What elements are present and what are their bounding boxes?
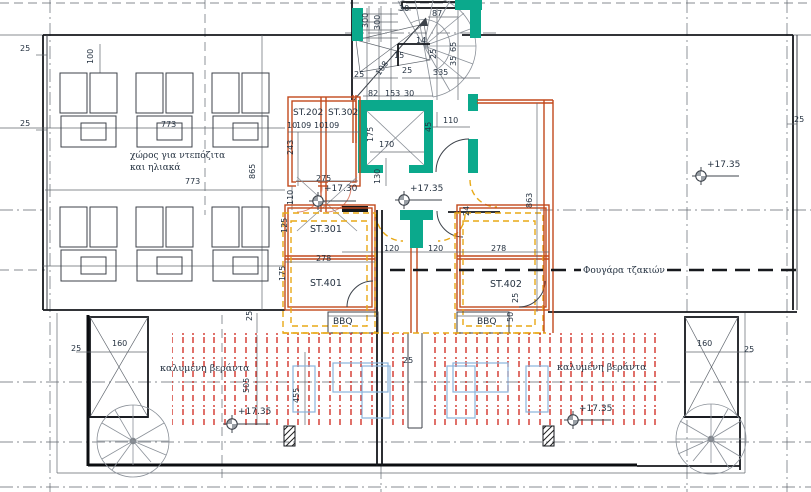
dim: 170 — [379, 140, 394, 149]
dim: 130 — [373, 169, 382, 184]
dim: 300 — [373, 15, 382, 30]
veranda-label-left: καλυμένη βεράντα — [160, 363, 250, 374]
dim: 25 — [403, 356, 413, 365]
dim: 160 — [112, 339, 127, 348]
storage-area-label-line2: και ηλιακά — [130, 163, 181, 173]
dim: 120 — [384, 244, 399, 253]
room-label-st401: ST.401 — [310, 278, 342, 289]
dim: 50 — [506, 312, 515, 322]
dim: 87 — [432, 9, 442, 18]
dim: 25 — [402, 66, 412, 75]
dim: 455 — [292, 388, 301, 403]
dim: 25 — [429, 49, 438, 59]
dim: 120 — [428, 244, 443, 253]
dim: 25 — [511, 293, 520, 303]
dim: 300 — [361, 13, 370, 28]
bbq-label-right: BBQ — [477, 317, 496, 327]
dim: 109 — [296, 121, 311, 130]
room-label-st202: ST.202 — [293, 108, 323, 118]
dim: 25 — [20, 44, 30, 53]
shaft-box-right — [683, 317, 752, 417]
dim: 24 — [462, 206, 471, 216]
dim: 30 — [399, 4, 409, 13]
dim: 30 — [404, 89, 414, 98]
dim: 100 — [86, 49, 95, 64]
dim: 10 — [314, 121, 324, 130]
room-label-st302: ST.302 — [328, 108, 358, 118]
dim: 25 — [71, 344, 81, 353]
dim: 82 — [368, 89, 378, 98]
dim: 773 — [161, 120, 176, 129]
dim: 25 — [20, 119, 30, 128]
dim: 109 — [324, 121, 339, 130]
dim: 25 — [744, 345, 754, 354]
dim: 110 — [286, 190, 295, 205]
level-label-upper-landing: +17.30 — [324, 184, 357, 194]
dim: 45 — [424, 122, 433, 132]
storage-area-label-line1: χώρος για ντεπόζιτα — [130, 151, 225, 161]
dim: 25 — [354, 70, 364, 79]
dim: 275 — [316, 174, 331, 183]
dim: 505 — [242, 378, 251, 393]
floor-plan-canvas: χώρος για ντεπόζιτα και ηλιακά καλυμένη … — [0, 0, 811, 492]
dim: 160 — [697, 339, 712, 348]
dim: 110 — [443, 116, 458, 125]
dim: 175 — [278, 266, 287, 281]
bbq-label-left: BBQ — [333, 317, 352, 327]
dim: 278 — [491, 244, 506, 253]
dim: 335 — [433, 68, 448, 77]
dim: 35 — [449, 56, 458, 66]
room-label-st402: ST.402 — [490, 279, 522, 290]
winder-stair — [352, 0, 480, 100]
building-outline — [0, 2, 811, 312]
room-label-st301: ST.301 — [310, 224, 342, 235]
level-label-roof-right: +17.35 — [707, 160, 740, 170]
dim: 153 — [385, 89, 400, 98]
dim: 865 — [248, 164, 257, 179]
dim: 25 — [794, 115, 804, 124]
column-section-right — [543, 426, 554, 446]
level-label-veranda-left: +17.35 — [238, 407, 271, 417]
level-label-veranda-right: +17.35 — [579, 404, 612, 414]
spiral-stair-right — [676, 404, 746, 474]
dim: 15 — [394, 51, 404, 60]
dim: 175 — [366, 127, 375, 142]
dim: 125 — [280, 218, 289, 233]
dim: 773 — [185, 177, 200, 186]
dim: 243 — [286, 140, 295, 155]
dim: 863 — [525, 193, 534, 208]
dim: 278 — [316, 254, 331, 263]
veranda-label-right: καλυμένη βεράντα — [557, 362, 647, 373]
level-label-core: +17.35 — [410, 184, 443, 194]
chimney-label: Φουγάρα τζακιών — [581, 266, 667, 276]
dim: 25 — [245, 311, 254, 321]
dim: 14 — [416, 36, 426, 45]
column-section-left — [284, 426, 295, 446]
dim: 65 — [449, 42, 458, 52]
